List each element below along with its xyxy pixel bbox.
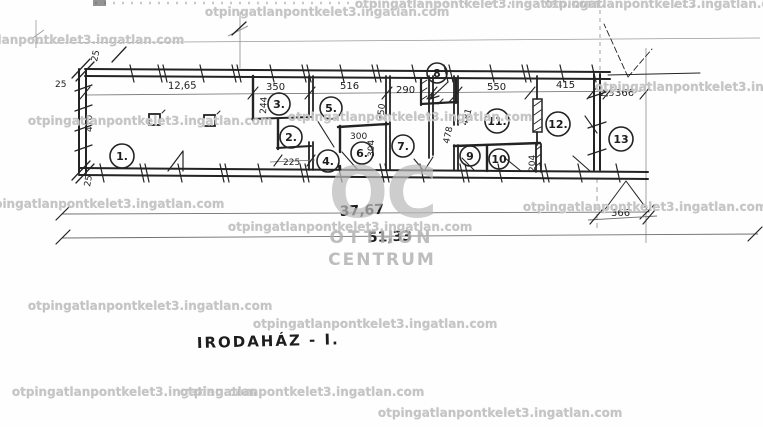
room-marker-13: 13 <box>609 127 633 151</box>
dim-room3-width: 350 <box>266 82 285 93</box>
dim-room11-width: 550 <box>487 82 506 93</box>
dim-room5-width: 516 <box>340 81 359 92</box>
dim-room6-depth: 304 <box>367 140 377 157</box>
watermark-text: otpingatlanpontkelet3.ingatlan.com <box>378 406 622 420</box>
room-label: 7. <box>397 140 409 153</box>
room-label: 8 <box>433 67 441 80</box>
room-marker-3: 3. <box>268 93 290 115</box>
dimension-callout-top-right <box>604 24 652 77</box>
watermark-text: otpingatlanpontkelet3.ingatlan.com <box>0 197 224 211</box>
watermark-text: otpingatlanpontkelet3.ingatlan.com <box>28 114 272 128</box>
dim-room7-depth: 478 <box>442 125 455 144</box>
watermark-text: otpingatlanpontkelet3.ingatlan.com <box>28 299 272 313</box>
room-label: 12. <box>548 118 568 131</box>
room-label: 4. <box>322 155 334 168</box>
dim-passage-width: 225 <box>283 158 300 168</box>
dim-entry-width: 290 <box>396 85 415 96</box>
room-marker-4: 4. <box>317 150 339 172</box>
room-marker-1: 1. <box>110 144 134 168</box>
dim-building-length: 37,67 <box>339 202 384 220</box>
room-label: 2. <box>285 131 297 144</box>
room-label: 9 <box>466 150 474 163</box>
dim-room12-width: 415 <box>556 80 575 91</box>
plan-title: IRODAHÁZ - I. <box>197 329 340 352</box>
room-marker-2: 2. <box>280 126 302 148</box>
watermark-text: otpingatlanpontkelet3.ingatlan.com <box>545 0 763 11</box>
dim-offset-top-left: 25 <box>55 80 66 90</box>
watermark-text: otpingatlanpontkelet3.ingatlan.com <box>180 385 424 399</box>
watermark-text: otpingatlanpontkelet3.ingatlan.com <box>288 110 532 124</box>
watermark-text: otpingatlanpontkelet3.ingatlan.com <box>523 200 763 214</box>
dim-offset-top: 25 <box>90 49 102 62</box>
dim-room10-depth: 204 <box>528 155 538 172</box>
watermark-text: otpingatlanpontkelet3.ingatlan.com <box>595 80 763 94</box>
dim-top-left-span: 12,65 <box>168 81 197 92</box>
room-marker-7: 7. <box>392 135 414 157</box>
room-marker-12: 12. <box>546 112 570 136</box>
room-marker-9: 9 <box>460 146 480 166</box>
room-label: 3. <box>273 98 285 111</box>
watermark-text: otpingatlanpontkelet3.ingatlan.com <box>0 33 184 47</box>
watermark-text: otpingatlanpontkelet3.ingatlan.com <box>253 317 497 331</box>
room-label: 1. <box>116 150 128 163</box>
dim-offset-bottom: 25 <box>83 175 95 188</box>
room-marker-8: 8 <box>427 63 447 83</box>
room-label: 13 <box>613 133 628 146</box>
dim-room6-width: 300 <box>350 132 367 142</box>
scanned-floor-plan: 1. 2. 3. 4. 5. 6. 7. 8 9 10 11. 12. 13 2… <box>0 0 763 427</box>
watermark-text: otpingatlanpontkelet3.ingatlan.com <box>228 220 472 234</box>
dim-room3-depth: 244 <box>259 96 270 114</box>
scan-artifact-blob <box>93 0 106 6</box>
room-label: 10 <box>491 153 507 166</box>
